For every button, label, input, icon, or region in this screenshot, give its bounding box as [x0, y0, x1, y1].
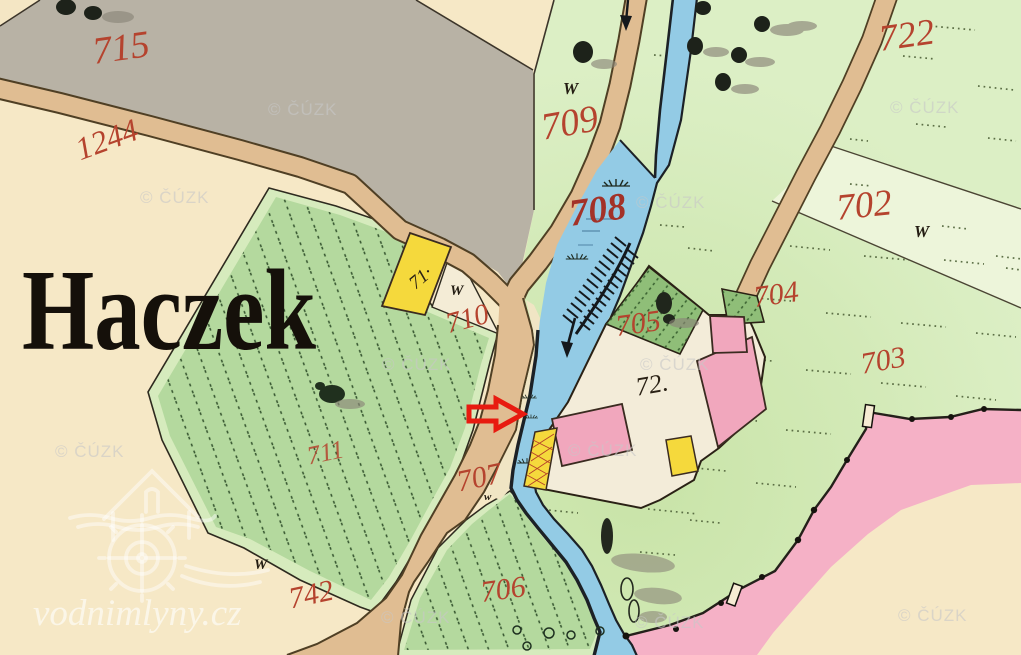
svg-text:w: w	[484, 491, 492, 503]
svg-text:706: 706	[478, 570, 527, 609]
svg-text:702: 702	[834, 182, 893, 229]
svg-text:vodnimlyny.cz: vodnimlyny.cz	[33, 593, 242, 634]
svg-text:715: 715	[90, 23, 152, 73]
svg-text:705: 705	[613, 304, 662, 343]
svg-text:722: 722	[876, 11, 937, 59]
svg-text:W: W	[914, 222, 931, 241]
svg-text:W: W	[450, 283, 465, 299]
svg-text:Haczek: Haczek	[22, 247, 316, 374]
svg-text:704: 704	[751, 275, 800, 314]
svg-text:708: 708	[567, 185, 629, 235]
svg-text:W: W	[563, 79, 580, 98]
